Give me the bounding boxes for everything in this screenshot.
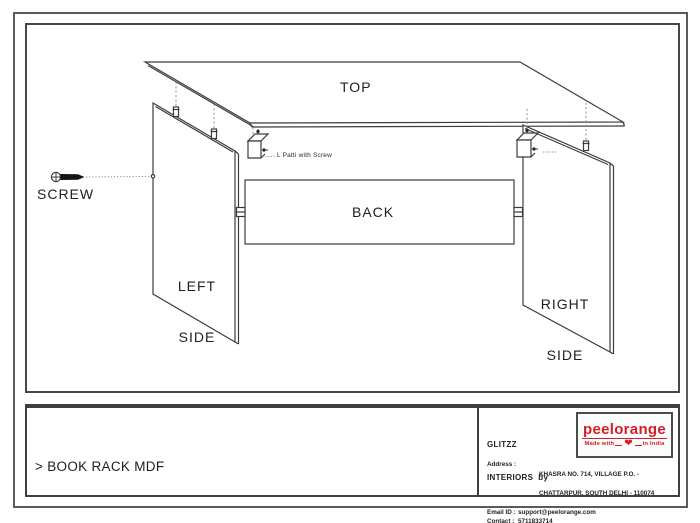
address-label: Address :	[487, 460, 518, 508]
screw-icon	[51, 172, 154, 181]
contact-value: 5711833714	[518, 517, 553, 523]
l-bracket-icon	[248, 129, 268, 158]
back-panel-label: BACK	[352, 204, 394, 220]
address-value: KHASRA NO. 714, VILLAGE P.O. - CHATTARPU…	[518, 460, 654, 508]
company-info-panel: GLITZZ INTERIORS by peelorange Made with…	[477, 408, 678, 495]
left-side-panel-label: LEFT SIDE	[168, 244, 226, 380]
top-panel-shape	[145, 62, 625, 127]
note-line: > BOOK RACK MDF	[35, 456, 393, 478]
email-row: Email ID : support@peelorange.com	[487, 508, 654, 518]
assembly-instruction-sheet: TOP BACK LEFT SIDE RIGHT SIDE SCREW L Pa…	[0, 0, 700, 523]
brand-wordmark: peelorange	[582, 422, 667, 439]
heart-icon: ❤	[624, 440, 632, 448]
tagline-rule-right	[635, 445, 642, 446]
email-value: support@peelorange.com	[518, 508, 596, 518]
email-label: Email ID :	[487, 508, 518, 518]
screw-label: SCREW	[37, 186, 94, 202]
tagline-rule-left	[615, 445, 622, 446]
contact-row: Contact : 5711833714	[487, 517, 654, 523]
right-side-panel-label: RIGHT SIDE	[534, 262, 596, 398]
peelorange-logo: peelorange Made with ❤ in India	[576, 412, 673, 458]
address-row: Address : KHASRA NO. 714, VILLAGE P.O. -…	[487, 460, 654, 508]
l-patti-label: L Patti with Screw	[277, 152, 332, 159]
contact-label: Contact :	[487, 517, 518, 523]
brand-tagline: Made with ❤ in India	[584, 440, 664, 448]
company-contact-info: Address : KHASRA NO. 714, VILLAGE P.O. -…	[487, 460, 654, 523]
assembly-notes: > BOOK RACK MDF > TOTAL PCS 4 > KINDLY P…	[35, 413, 393, 523]
l-patti-leader-line	[262, 156, 276, 157]
top-panel-label: TOP	[340, 79, 372, 95]
title-block: > BOOK RACK MDF > TOTAL PCS 4 > KINDLY P…	[25, 404, 680, 497]
